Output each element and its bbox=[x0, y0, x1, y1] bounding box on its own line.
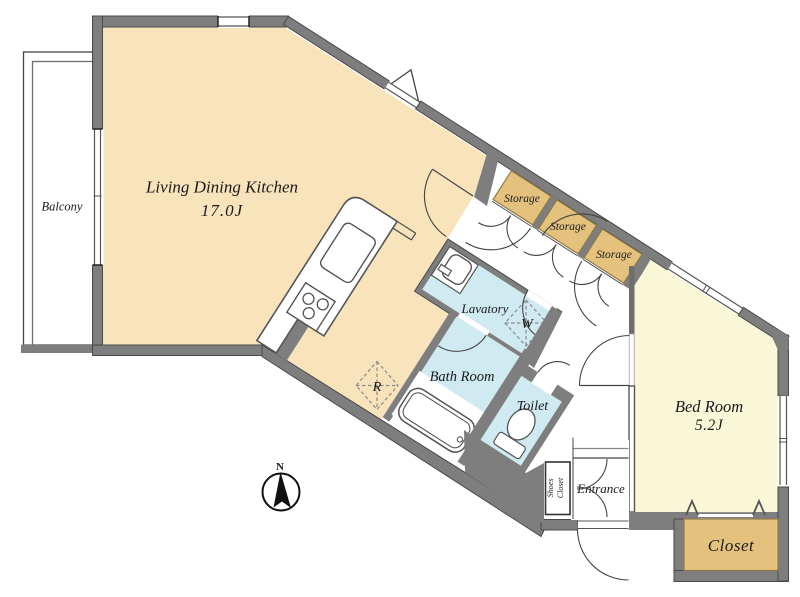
svg-text:Closet: Closet bbox=[556, 477, 565, 498]
svg-text:Living Dining Kitchen: Living Dining Kitchen bbox=[145, 178, 298, 197]
svg-text:Closet: Closet bbox=[708, 536, 755, 555]
svg-text:Shoes: Shoes bbox=[546, 479, 555, 498]
svg-text:R: R bbox=[372, 380, 382, 395]
svg-text:Toilet: Toilet bbox=[517, 399, 549, 414]
svg-text:Balcony: Balcony bbox=[42, 200, 83, 214]
svg-text:Bed Room: Bed Room bbox=[675, 397, 743, 416]
svg-text:N: N bbox=[276, 461, 284, 473]
svg-text:W: W bbox=[521, 317, 534, 332]
svg-text:5.2J: 5.2J bbox=[695, 417, 724, 434]
svg-text:Lavatory: Lavatory bbox=[461, 301, 509, 316]
svg-text:Storage: Storage bbox=[596, 249, 632, 261]
svg-text:Storage: Storage bbox=[550, 221, 586, 233]
svg-text:Storage: Storage bbox=[504, 193, 540, 205]
svg-text:17.0J: 17.0J bbox=[201, 201, 244, 220]
svg-text:Bath Room: Bath Room bbox=[430, 369, 495, 385]
